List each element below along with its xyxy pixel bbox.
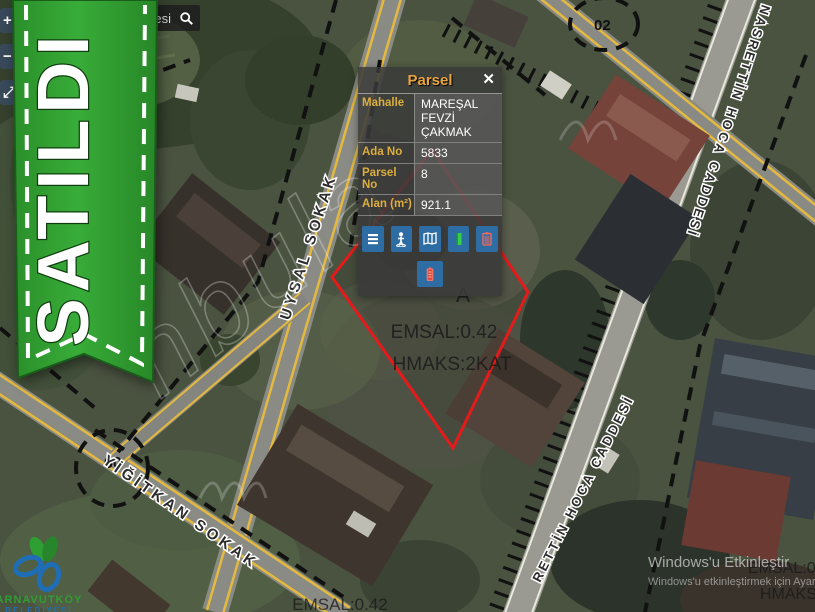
battery-icon <box>422 266 438 282</box>
menu-icon <box>365 231 381 247</box>
field-label: Ada No <box>358 143 414 163</box>
windows-activation-watermark: Windows'u Etkinleştir Windows'u etkinleş… <box>648 554 815 588</box>
logo-subtitle: BELEDİYESİ <box>5 606 73 612</box>
field-value: MAREŞAL FEVZİ ÇAKMAK <box>414 94 502 142</box>
search-icon[interactable] <box>179 11 194 26</box>
map-icon <box>422 231 438 247</box>
pegman-icon <box>393 231 409 247</box>
popup-header: Parsel ✕ <box>358 67 502 94</box>
map-application: 60 02 A EMSAL:0.42 HMAKS:2KAT EMSAL:0.42… <box>0 0 815 612</box>
report-icon <box>479 231 495 247</box>
municipality-logo: ARNAVUTKÖY BELEDİYESİ <box>0 533 116 612</box>
basemap-button[interactable] <box>419 226 441 252</box>
field-label: Mahalle <box>358 94 414 142</box>
field-value: 921.1 <box>414 195 502 215</box>
report-button[interactable] <box>476 226 498 252</box>
popup-toolbar <box>358 216 502 296</box>
cadastre-circle-number-2: 02 <box>594 17 611 34</box>
windows-activation-line2: Windows'u etkinleştirmek için Ayarlar'a … <box>648 576 815 588</box>
field-value: 5833 <box>414 143 502 163</box>
parsel-popup: Parsel ✕ Mahalle MAREŞAL FEVZİ ÇAKMAK Ad… <box>358 67 502 296</box>
right-hmaks-partial: HMAKS:2 <box>760 586 815 603</box>
door-button[interactable] <box>448 226 470 252</box>
popup-row-alan: Alan (m²) 921.1 <box>358 195 502 216</box>
sold-ribbon: SATILDI <box>0 0 175 400</box>
popup-title: Parsel <box>407 72 452 89</box>
emsal-label: EMSAL:0.42 <box>391 322 498 343</box>
field-label: Parsel No <box>358 164 414 194</box>
sold-ribbon-text: SATILDI <box>24 30 104 347</box>
door-icon <box>451 231 467 247</box>
popup-row-ada-no: Ada No 5833 <box>358 143 502 164</box>
menu-button[interactable] <box>362 226 384 252</box>
battery-button[interactable] <box>417 261 443 287</box>
streetview-button[interactable] <box>391 226 413 252</box>
windows-activation-line1: Windows'u Etkinleştir <box>648 554 815 571</box>
logo-flower-icon <box>13 534 62 592</box>
bottom-emsal-partial: EMSAL:0.42 <box>292 595 387 612</box>
popup-row-parsel-no: Parsel No 8 <box>358 164 502 195</box>
field-value: 8 <box>414 164 502 194</box>
field-label: Alan (m²) <box>358 195 414 215</box>
logo-city-name: ARNAVUTKÖY <box>0 593 82 606</box>
popup-row-mahalle: Mahalle MAREŞAL FEVZİ ÇAKMAK <box>358 94 502 143</box>
close-icon[interactable]: ✕ <box>482 70 495 88</box>
hmaks-label: HMAKS:2KAT <box>393 354 512 375</box>
